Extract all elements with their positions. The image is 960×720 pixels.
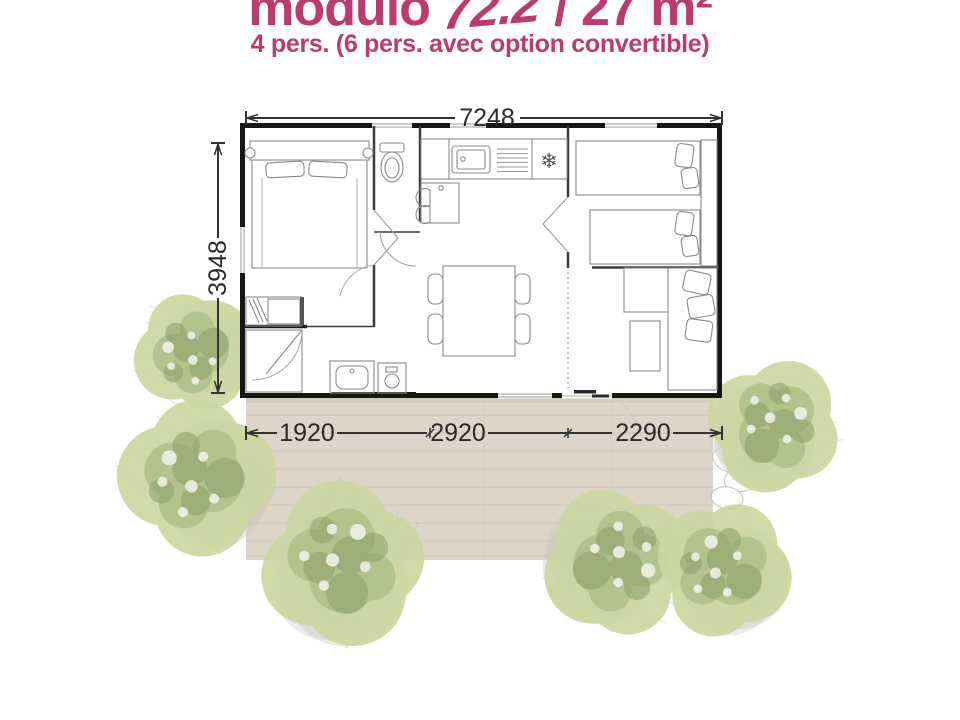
twin-bed	[576, 141, 700, 195]
dimension-depth-label: 3948	[204, 240, 232, 296]
mobile-home-plan: ❄	[240, 123, 720, 399]
floor-plan-svg: ❄	[0, 0, 960, 720]
twin-bed	[590, 210, 700, 264]
double-bed	[245, 141, 373, 268]
window	[605, 123, 657, 129]
window	[498, 393, 552, 399]
window	[372, 123, 412, 129]
dimension-segment-label: 2290	[615, 419, 671, 447]
side-shelf	[701, 140, 717, 266]
window	[240, 227, 246, 273]
fridge-icon: ❄	[540, 149, 558, 173]
dining-table	[443, 266, 515, 356]
dimension-width-label: 7248	[459, 104, 515, 132]
coffee-table	[630, 321, 660, 371]
dining-area	[428, 266, 530, 356]
dimension-segment-label: 2920	[430, 419, 486, 447]
dimension-segment-label: 1920	[279, 419, 335, 447]
storage-unit	[624, 268, 672, 312]
